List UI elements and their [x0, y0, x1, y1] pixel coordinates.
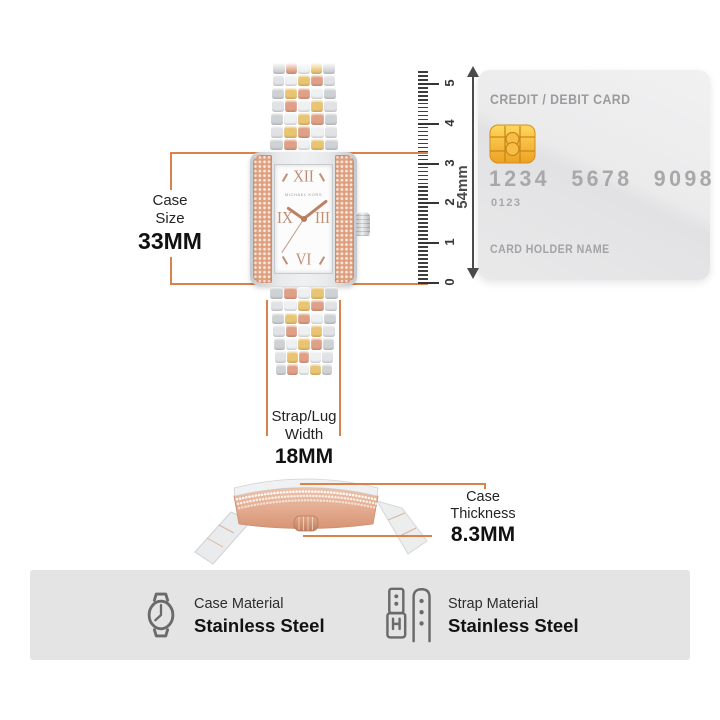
- strap-width-right-line: [339, 300, 341, 436]
- material-value: Stainless Steel: [448, 614, 579, 637]
- ruler-tick: [418, 151, 428, 153]
- ruler-tick: [418, 139, 428, 141]
- ruler-unit-label: 4: [442, 114, 458, 132]
- card-sub-number: 0123: [491, 197, 521, 209]
- ruler-tick: [418, 87, 428, 89]
- dial-minute-tick: [282, 173, 288, 182]
- ruler-tick: [418, 278, 428, 280]
- case-material-text: Case Material Stainless Steel: [194, 594, 325, 637]
- ruler-tick: [418, 135, 428, 137]
- ruler-tick: [418, 107, 428, 109]
- crystal-bezel-right: [335, 155, 354, 283]
- ruler-tick: [418, 202, 439, 204]
- watch-dial: XII III VI IX MICHAEL KORS: [274, 164, 333, 274]
- ruler-tick: [418, 131, 428, 133]
- watch-case: XII III VI IX MICHAEL KORS: [250, 152, 357, 286]
- ruler-tick: [418, 262, 428, 264]
- ruler-tick: [418, 194, 428, 196]
- bracelet-link-row: [274, 338, 334, 350]
- strap-width-label-line2: Width: [270, 426, 338, 444]
- ruler-tick: [418, 123, 439, 125]
- bracelet-link-row: [271, 126, 338, 138]
- watch-case-icon: [142, 591, 180, 639]
- case-thickness-top-line: [300, 483, 486, 485]
- bracelet-link-row: [273, 62, 335, 74]
- card-number: 123456789098: [489, 166, 715, 192]
- ruler-tick: [418, 147, 428, 149]
- ruler-tick: [418, 186, 428, 188]
- bracelet-link-row: [270, 287, 338, 299]
- dial-minute-tick: [319, 256, 325, 265]
- case-thickness-label: Case Thickness 8.3MM: [432, 489, 534, 547]
- dial-minute-tick: [282, 256, 288, 265]
- ruler-tick: [418, 167, 428, 169]
- ruler-tick: [418, 171, 428, 173]
- dial-numeral-3: III: [315, 210, 330, 227]
- card-number-group: 1234: [489, 166, 550, 192]
- bracelet-link-row: [272, 100, 337, 112]
- ruler-tick: [418, 91, 428, 93]
- card-number-group: 9098: [654, 166, 715, 192]
- bracelet-link-row: [276, 364, 332, 376]
- ruler-tick: [418, 111, 428, 113]
- bracelet-lower: [270, 287, 338, 376]
- ruler-tick: [418, 250, 428, 252]
- strap-width-left-line: [266, 300, 268, 436]
- dial-numeral-6: VI: [296, 252, 312, 269]
- ruler-tick: [418, 270, 428, 272]
- strap-material-group: Strap Material Stainless Steel: [382, 570, 579, 660]
- ruler-tick: [418, 115, 428, 117]
- bracelet-link-row: [272, 88, 336, 100]
- case-material-group: Case Material Stainless Steel: [142, 570, 325, 660]
- ruler-tick: [418, 75, 428, 77]
- ruler-unit-label: 1: [442, 233, 458, 251]
- materials-band: Case Material Stainless Steel Strap Mate…: [30, 570, 690, 660]
- ruler-tick: [418, 190, 428, 192]
- ruler-tick: [418, 159, 428, 161]
- crystal-bezel-left: [253, 155, 272, 283]
- bracelet-upper: [270, 62, 338, 151]
- ruler-tick: [418, 218, 428, 220]
- side-crown: [294, 516, 318, 531]
- bracelet-link-row: [273, 325, 335, 337]
- case-size-value: 33MM: [126, 228, 214, 255]
- ruler-tick: [418, 179, 428, 181]
- ruler-tick: [418, 79, 428, 81]
- ruler-tick: [418, 99, 428, 101]
- bracelet-link-row: [271, 113, 337, 125]
- case-size-label-line2: Size: [126, 210, 214, 228]
- dial-numeral-9: IX: [277, 210, 293, 227]
- case-thickness-value: 8.3MM: [432, 523, 534, 547]
- material-label: Strap Material: [448, 594, 579, 614]
- bracelet-link-row: [271, 300, 337, 312]
- ruler-tick: [418, 155, 428, 157]
- ruler-tick: [418, 183, 428, 185]
- ruler-tick: [418, 222, 428, 224]
- strap-width-label: Strap/Lug Width 18MM: [270, 408, 338, 469]
- ruler-tick: [418, 127, 428, 129]
- material-value: Stainless Steel: [194, 614, 325, 637]
- credit-card: CREDIT / DEBIT CARD 123456789098 0123 CA…: [478, 70, 710, 280]
- height-arrow: [472, 75, 474, 269]
- ruler-tick: [418, 71, 428, 73]
- bracelet-link-row: [273, 75, 336, 87]
- strap-icon: [382, 586, 434, 644]
- ruler-unit-label: 5: [442, 74, 458, 92]
- ruler-tick: [418, 163, 439, 165]
- strap-width-value: 18MM: [270, 444, 338, 469]
- case-size-label-line1: Case: [126, 192, 214, 210]
- dial-numeral-12: XII: [293, 169, 314, 186]
- ruler-tick: [418, 234, 428, 236]
- strap-width-label-line1: Strap/Lug: [270, 408, 338, 426]
- card-chip-icon: [489, 124, 536, 164]
- ruler-tick: [418, 198, 428, 200]
- ruler-tick: [418, 258, 428, 260]
- card-title: CREDIT / DEBIT CARD: [490, 91, 630, 107]
- ruler-tick: [418, 254, 428, 256]
- ruler-tick: [418, 274, 428, 276]
- dial-brand-text: MICHAEL KORS: [275, 192, 332, 197]
- ruler-tick: [418, 143, 428, 145]
- ruler-tick: [418, 210, 428, 212]
- strap-material-text: Strap Material Stainless Steel: [448, 594, 579, 637]
- watch-dimensions-infographic: Case Size 33MM Strap/Lug Width 18MM XII …: [0, 0, 720, 720]
- material-label: Case Material: [194, 594, 325, 614]
- card-number-group: 5678: [571, 166, 632, 192]
- ruler-tick: [418, 246, 428, 248]
- ruler-tick: [418, 266, 428, 268]
- side-bracelet-right: [377, 501, 427, 554]
- ruler-unit-label: 0: [442, 273, 458, 291]
- ruler-tick: [418, 119, 428, 121]
- ruler-tick: [418, 103, 428, 105]
- ruler-tick: [418, 238, 428, 240]
- ruler-tick: [418, 230, 428, 232]
- ruler-tick: [418, 83, 439, 85]
- card-holder-label: CARD HOLDER NAME: [490, 244, 610, 256]
- watch-crown: [356, 212, 370, 236]
- ruler-tick: [418, 95, 428, 97]
- ruler-tick: [418, 282, 439, 284]
- dial-center-dot: [301, 216, 307, 222]
- case-thickness-label-text: Case Thickness: [432, 489, 534, 523]
- ruler-tick: [418, 175, 428, 177]
- bracelet-link-row: [275, 351, 333, 363]
- bracelet-link-row: [272, 313, 336, 325]
- case-size-label: Case Size 33MM: [126, 190, 214, 257]
- ruler-tick: [418, 206, 428, 208]
- bracelet-link-row: [270, 139, 338, 151]
- ruler-tick: [418, 214, 428, 216]
- ruler-tick: [418, 242, 439, 244]
- height-arrow-label: 54mm: [454, 161, 472, 213]
- ruler-tick: [418, 226, 428, 228]
- arrow-down-icon: [467, 268, 479, 279]
- dial-minute-tick: [319, 173, 325, 182]
